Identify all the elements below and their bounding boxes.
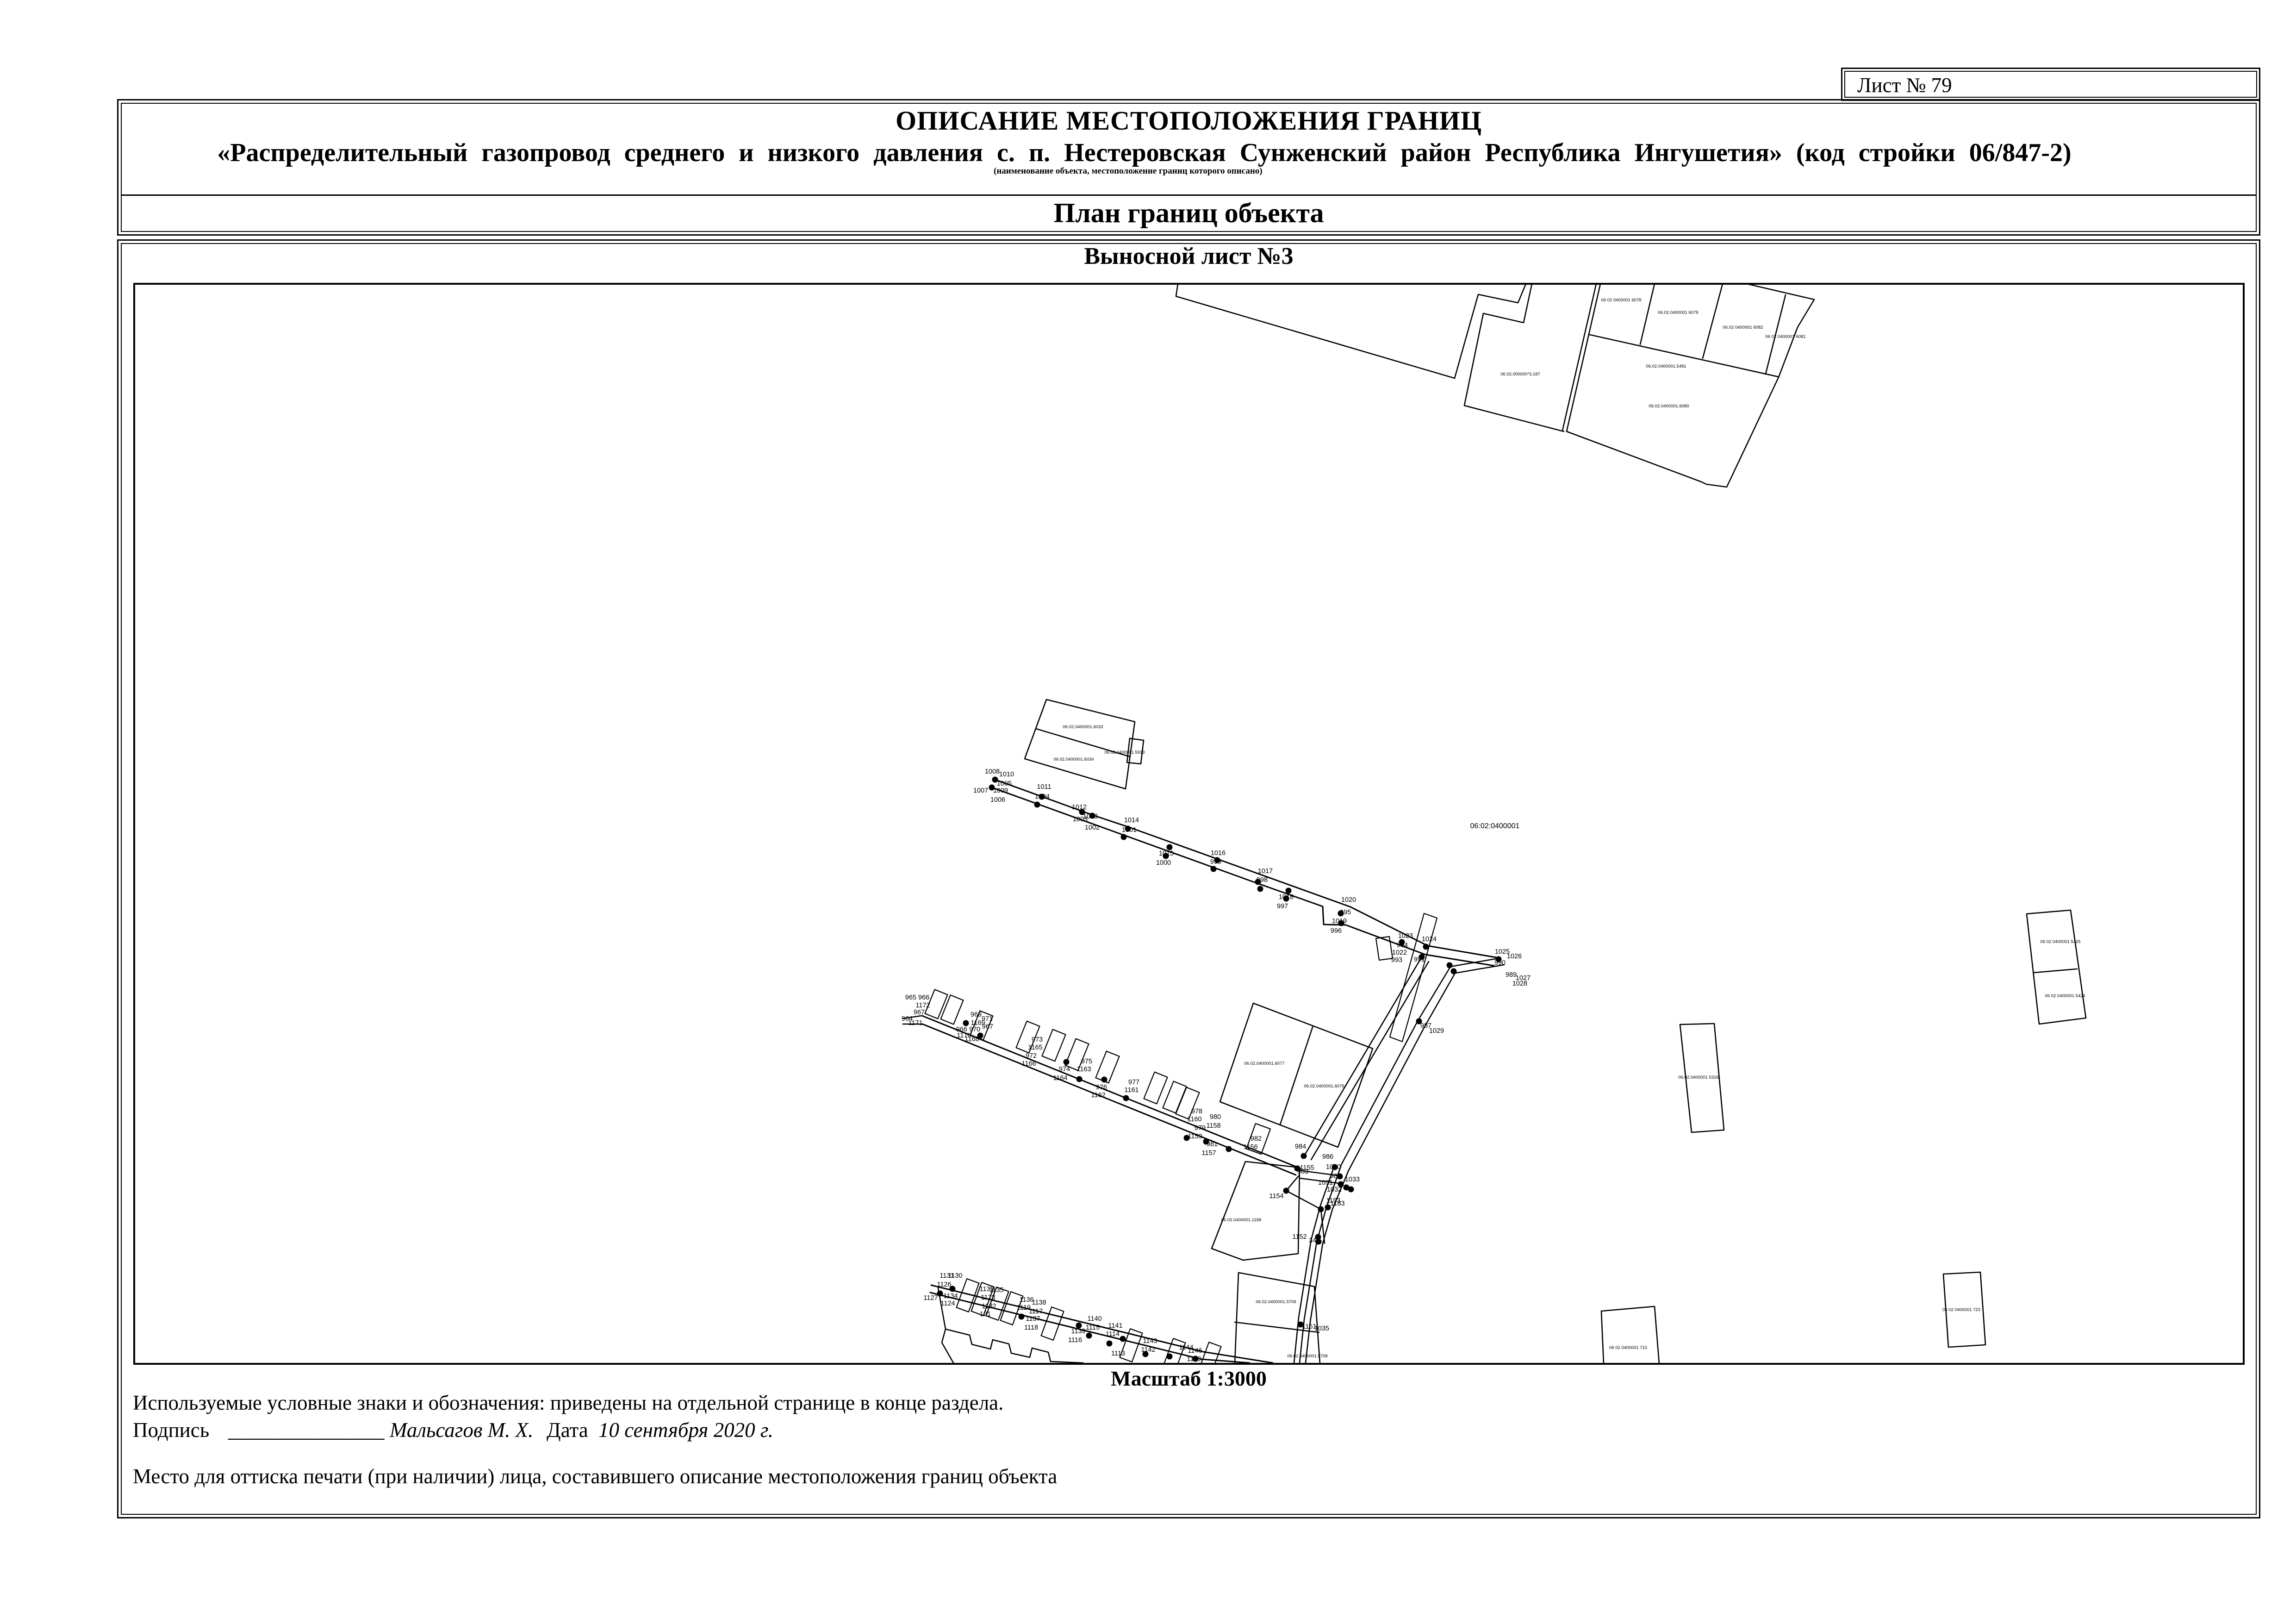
- svg-text:1024: 1024: [1422, 936, 1437, 943]
- svg-text:1124: 1124: [940, 1300, 955, 1307]
- svg-text:1166: 1166: [1021, 1060, 1036, 1068]
- svg-text:965 966: 965 966: [905, 994, 929, 1001]
- svg-text:1113: 1113: [1111, 1350, 1125, 1357]
- svg-text:1183: 1183: [1330, 1200, 1344, 1207]
- svg-text:1012: 1012: [1072, 804, 1087, 811]
- svg-text:1017: 1017: [1258, 868, 1273, 875]
- svg-text:1035: 1035: [1314, 1325, 1329, 1332]
- svg-text:1030: 1030: [1326, 1163, 1341, 1171]
- svg-text:1023: 1023: [1398, 932, 1413, 940]
- svg-text:06 02 0400001 723: 06 02 0400001 723: [1942, 1307, 1980, 1312]
- svg-text:989: 989: [1506, 971, 1517, 979]
- svg-text:1146: 1146: [1188, 1347, 1202, 1355]
- svg-text:1032: 1032: [1327, 1186, 1342, 1193]
- svg-text:980: 980: [1210, 1113, 1221, 1121]
- svg-text:1016: 1016: [1211, 849, 1226, 857]
- svg-text:06.02.0400001.1188: 06.02.0400001.1188: [1221, 1218, 1261, 1223]
- svg-text:121: 121: [980, 1311, 991, 1318]
- svg-text:972: 972: [1026, 1052, 1037, 1060]
- svg-text:1002: 1002: [1085, 824, 1100, 831]
- svg-text:06.02.0400001.5709: 06.02.0400001.5709: [1256, 1299, 1296, 1305]
- svg-text:1154: 1154: [1269, 1193, 1283, 1200]
- svg-text:1141: 1141: [1108, 1322, 1122, 1330]
- svg-text:1117: 1117: [1029, 1308, 1043, 1315]
- svg-text:1007: 1007: [973, 787, 988, 794]
- svg-text:1140: 1140: [1087, 1315, 1101, 1323]
- svg-text:06:02:0400001: 06:02:0400001: [1470, 822, 1520, 830]
- svg-text:06.02 0400001 6082: 06.02 0400001 6082: [1723, 325, 1763, 330]
- svg-text:1020: 1020: [1341, 896, 1356, 904]
- svg-text:06.02.0400001.6077: 06.02.0400001.6077: [1244, 1061, 1284, 1066]
- svg-text:991: 991: [1414, 956, 1425, 963]
- svg-text:1019: 1019: [1332, 918, 1347, 925]
- svg-text:1005: 1005: [997, 780, 1012, 787]
- svg-text:1000: 1000: [1156, 859, 1171, 867]
- svg-text:986: 986: [1322, 1153, 1333, 1161]
- svg-text:1161: 1161: [1124, 1087, 1139, 1094]
- svg-text:997: 997: [1277, 903, 1288, 910]
- svg-text:969: 969: [971, 1011, 982, 1018]
- svg-text:1163: 1163: [1076, 1066, 1091, 1073]
- svg-text:06.02.0400001.5481: 06.02.0400001.5481: [1646, 364, 1686, 369]
- svg-text:995: 995: [1340, 909, 1351, 916]
- svg-text:1165: 1165: [1028, 1044, 1042, 1051]
- svg-text:1014: 1014: [1124, 817, 1139, 824]
- svg-text:974: 974: [1059, 1066, 1070, 1073]
- svg-text:1137: 1137: [1026, 1315, 1040, 1323]
- svg-text:982: 982: [1251, 1135, 1262, 1143]
- svg-text:1172: 1172: [915, 1002, 930, 1009]
- svg-text:1171: 1171: [908, 1019, 922, 1027]
- svg-text:993: 993: [1391, 956, 1402, 964]
- svg-text:1158: 1158: [1206, 1122, 1220, 1130]
- svg-text:34: 34: [1309, 1237, 1316, 1244]
- svg-text:1142: 1142: [1141, 1346, 1155, 1354]
- svg-text:06.02.0400001.6034: 06.02.0400001.6034: [1053, 757, 1094, 762]
- svg-text:1139: 1139: [1071, 1328, 1085, 1335]
- svg-text:1160: 1160: [1187, 1116, 1201, 1123]
- svg-text:1033: 1033: [1345, 1176, 1360, 1183]
- svg-text:06 02 0400001 6081: 06 02 0400001 6081: [1765, 334, 1805, 339]
- svg-text:967: 967: [982, 1023, 993, 1031]
- svg-text:06 02 0400001 710: 06 02 0400001 710: [1609, 1345, 1647, 1350]
- svg-text:1134: 1134: [943, 1293, 958, 1300]
- svg-text:1123: 1123: [981, 1294, 995, 1301]
- svg-text:1116: 1116: [1068, 1337, 1082, 1344]
- svg-text:1022: 1022: [1392, 949, 1407, 956]
- svg-text:1008: 1008: [985, 768, 1000, 775]
- svg-text:978: 978: [1191, 1108, 1202, 1115]
- svg-text:06.02.0400001 5316: 06.02.0400001 5316: [1678, 1075, 1718, 1080]
- svg-text:1006: 1006: [990, 796, 1005, 804]
- svg-text:06.02.0400001.5708: 06.02.0400001.5708: [1287, 1354, 1327, 1359]
- svg-text:998: 998: [1257, 876, 1268, 884]
- svg-text:1114: 1114: [1106, 1330, 1120, 1338]
- svg-text:1010: 1010: [999, 771, 1014, 778]
- svg-text:1026: 1026: [1507, 953, 1522, 960]
- svg-text:1004: 1004: [1035, 793, 1050, 800]
- svg-text:06 02 0400001 6078: 06 02 0400001 6078: [1601, 298, 1641, 303]
- svg-text:06.02.0400001.6076: 06.02.0400001.6076: [1304, 1084, 1344, 1089]
- svg-text:1162: 1162: [1091, 1092, 1105, 1099]
- svg-text:1164: 1164: [1053, 1074, 1067, 1082]
- svg-text:973: 973: [1032, 1036, 1043, 1043]
- svg-text:1168: 1168: [964, 1036, 979, 1043]
- svg-text:967: 967: [914, 1009, 925, 1016]
- svg-text:06.02.0400001.5913: 06.02.0400001.5913: [1104, 750, 1145, 755]
- svg-text:1118: 1118: [1024, 1324, 1038, 1331]
- svg-text:1130: 1130: [948, 1272, 962, 1280]
- svg-text:1011: 1011: [1037, 783, 1051, 791]
- svg-text:1028: 1028: [1512, 980, 1527, 987]
- svg-text:1115: 1115: [1086, 1324, 1100, 1331]
- svg-text:990: 990: [1494, 959, 1506, 967]
- svg-text:999: 999: [1210, 858, 1221, 866]
- svg-text:983: 983: [1297, 1168, 1308, 1175]
- svg-text:06.02.0400001 6079: 06.02.0400001 6079: [1658, 310, 1698, 315]
- svg-text:1015: 1015: [1159, 850, 1174, 857]
- svg-text:06.02.0400001.6080: 06.02.0400001.6080: [1649, 404, 1689, 409]
- svg-text:06.02.000000*3.187: 06.02.000000*3.187: [1500, 372, 1540, 377]
- svg-text:1138: 1138: [1032, 1299, 1046, 1306]
- svg-text:06 02 0400001 5424: 06 02 0400001 5424: [2045, 993, 2085, 999]
- svg-text:1135: 1135: [989, 1287, 1003, 1294]
- svg-text:1031: 1031: [1318, 1179, 1333, 1187]
- svg-text:977: 977: [1128, 1079, 1139, 1086]
- svg-text:1132: 1132: [982, 1303, 996, 1310]
- svg-text:1013: 1013: [1083, 813, 1098, 820]
- svg-text:1009: 1009: [993, 787, 1008, 794]
- svg-text:994: 994: [1397, 942, 1408, 949]
- svg-text:1157: 1157: [1201, 1149, 1216, 1157]
- svg-text:1152: 1152: [1292, 1233, 1307, 1241]
- svg-text:984: 984: [1295, 1143, 1306, 1150]
- svg-text:1109: 1109: [1187, 1355, 1201, 1363]
- svg-text:981: 981: [1207, 1141, 1218, 1148]
- svg-text:1127: 1127: [923, 1294, 938, 1302]
- svg-text:996: 996: [1331, 927, 1342, 935]
- svg-text:1159: 1159: [1188, 1133, 1202, 1140]
- svg-text:1029: 1029: [1429, 1027, 1444, 1035]
- svg-text:06.02.0400001.6033: 06.02.0400001.6033: [1063, 725, 1103, 730]
- svg-text:1126: 1126: [937, 1281, 951, 1288]
- svg-text:975: 975: [1081, 1058, 1092, 1065]
- svg-text:979: 979: [1195, 1124, 1206, 1132]
- svg-text:1143: 1143: [1143, 1337, 1157, 1345]
- svg-text:976: 976: [1096, 1084, 1107, 1091]
- svg-text:1001: 1001: [1122, 826, 1137, 834]
- svg-text:1156: 1156: [1243, 1143, 1257, 1151]
- svg-text:1018: 1018: [1279, 893, 1294, 901]
- svg-text:06 02 0400001 5425: 06 02 0400001 5425: [2040, 939, 2080, 944]
